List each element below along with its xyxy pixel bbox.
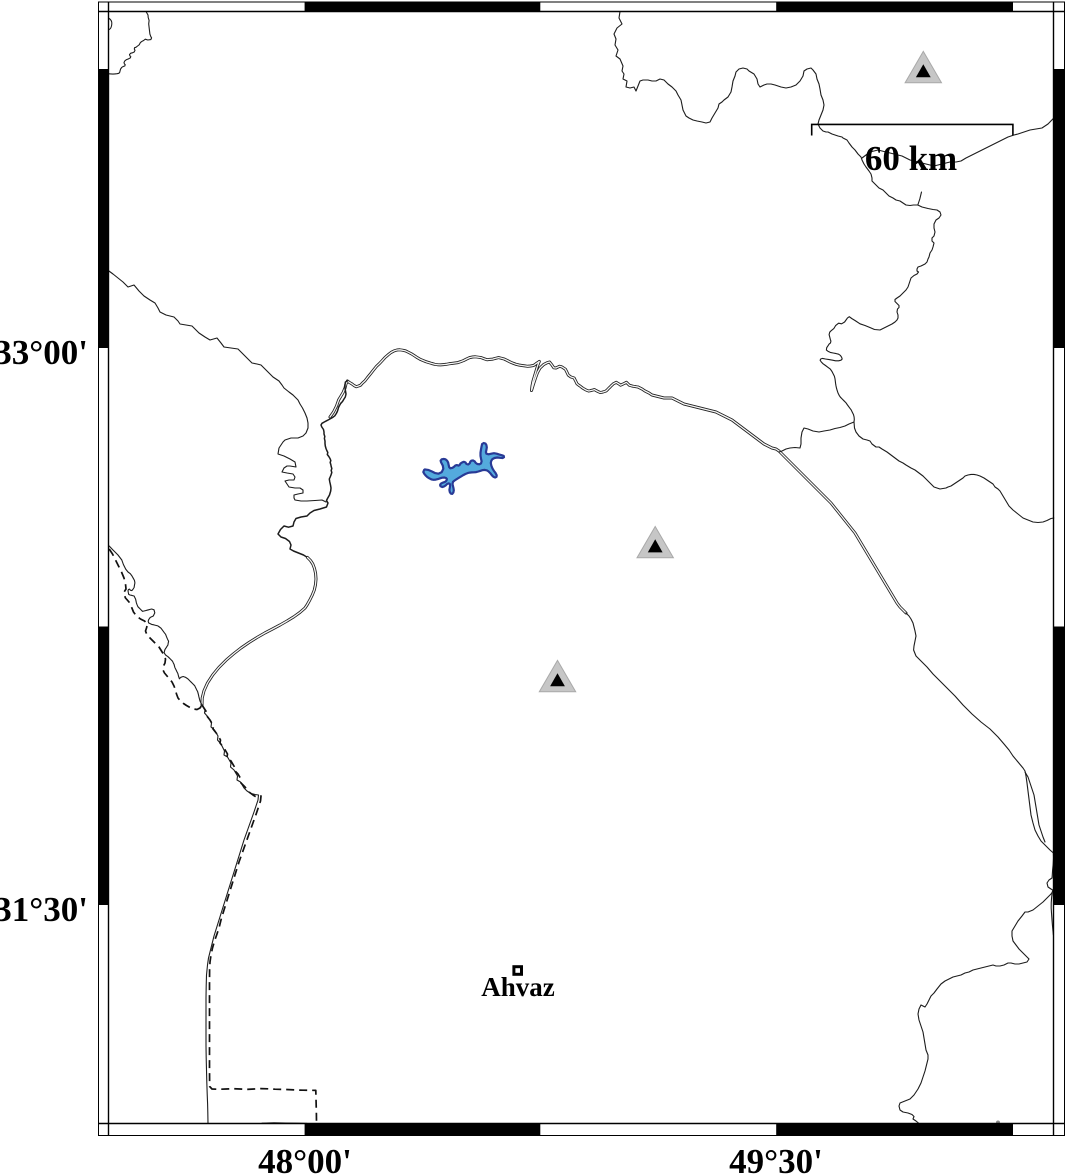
svg-text:49°30': 49°30' bbox=[729, 1142, 823, 1174]
svg-text:Ahvaz: Ahvaz bbox=[481, 972, 555, 1002]
svg-text:33°00': 33°00' bbox=[0, 333, 88, 372]
svg-text:31°30': 31°30' bbox=[0, 890, 88, 929]
svg-text:60 km: 60 km bbox=[865, 139, 957, 178]
svg-text:48°00': 48°00' bbox=[258, 1142, 352, 1174]
